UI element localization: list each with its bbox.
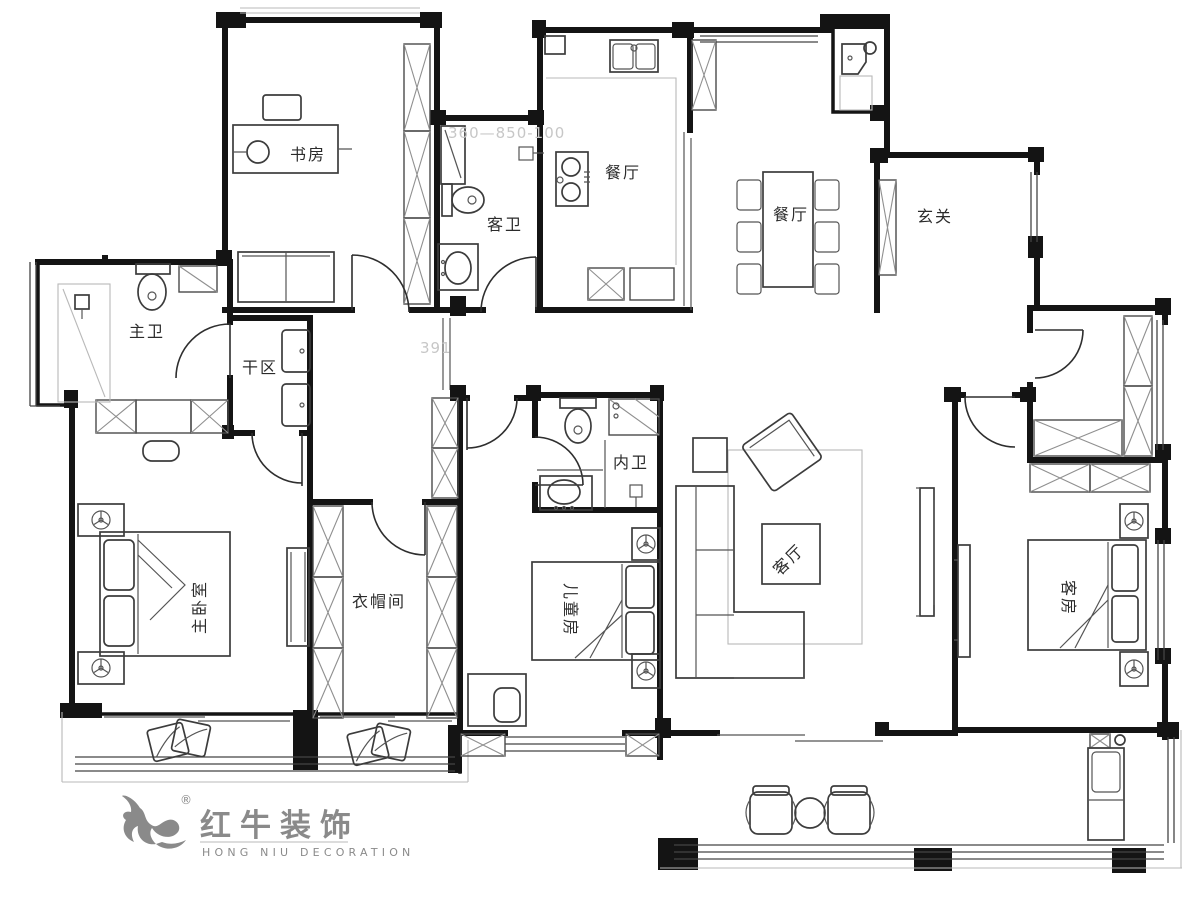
balcony-cushions xyxy=(147,719,411,766)
guest-room-furniture xyxy=(954,504,1148,686)
master-bath-door xyxy=(176,324,230,378)
room-label-study: 书房 xyxy=(290,145,326,164)
registered-mark: ® xyxy=(180,793,192,807)
room-label-master-bedroom: 主卧室 xyxy=(190,580,209,634)
master-bedroom-door xyxy=(252,433,302,486)
dining-table xyxy=(737,172,839,294)
guest-room-door xyxy=(965,397,1015,447)
room-label-dining: 餐厅 xyxy=(773,205,809,224)
master-bedroom-furniture xyxy=(78,441,309,684)
utility-sink xyxy=(840,42,876,110)
study-door xyxy=(352,255,409,312)
kids-room-door xyxy=(467,398,517,450)
closet-room-door xyxy=(1035,330,1083,378)
logo-text-en: HONG NIU DECORATION xyxy=(202,846,414,859)
cloakroom-door xyxy=(372,502,425,555)
room-label-master-bath: 主卫 xyxy=(129,322,165,341)
study-furniture xyxy=(233,95,352,302)
room-label-entry: 玄关 xyxy=(917,207,953,226)
room-labels: 书房 客卫 餐厅 餐厅 玄关 主卫 干区 主卧室 衣帽间 儿童房 内卫 客厅 客… xyxy=(129,145,1078,637)
dry-area-fixtures xyxy=(282,330,310,426)
floor-plan-canvas: 书房 客卫 餐厅 餐厅 玄关 主卫 干区 主卧室 衣帽间 儿童房 内卫 客厅 客… xyxy=(0,0,1200,900)
bull-icon xyxy=(122,796,186,849)
brand-logo: ® 红牛装饰 HONG NIU DECORATION xyxy=(122,793,414,859)
room-label-cloakroom: 衣帽间 xyxy=(352,592,406,611)
guest-bath-door xyxy=(481,257,536,312)
windows xyxy=(30,8,1182,868)
inner-bath-door xyxy=(535,437,583,485)
right-balcony-furniture xyxy=(746,735,1125,840)
room-label-living-room: 客厅 xyxy=(769,540,808,579)
room-label-inner-bath: 内卫 xyxy=(613,453,649,472)
logo-text-cn: 红牛装饰 xyxy=(200,808,360,844)
kitchen-fixtures xyxy=(545,36,676,265)
room-label-dry-area: 干区 xyxy=(242,358,278,377)
dimension-text-2: 391 xyxy=(420,339,452,357)
room-label-kids-room: 儿童房 xyxy=(561,583,580,637)
room-label-guest-bath: 客卫 xyxy=(487,215,523,234)
ceiling-symbols xyxy=(92,511,1143,680)
room-label-kitchen: 餐厅 xyxy=(605,163,641,182)
guest-bath-fixtures xyxy=(438,126,544,290)
room-label-guest-room: 客房 xyxy=(1059,580,1078,616)
living-room-furniture xyxy=(676,412,934,678)
dimension-text-1: 360—850-100 xyxy=(448,124,565,142)
